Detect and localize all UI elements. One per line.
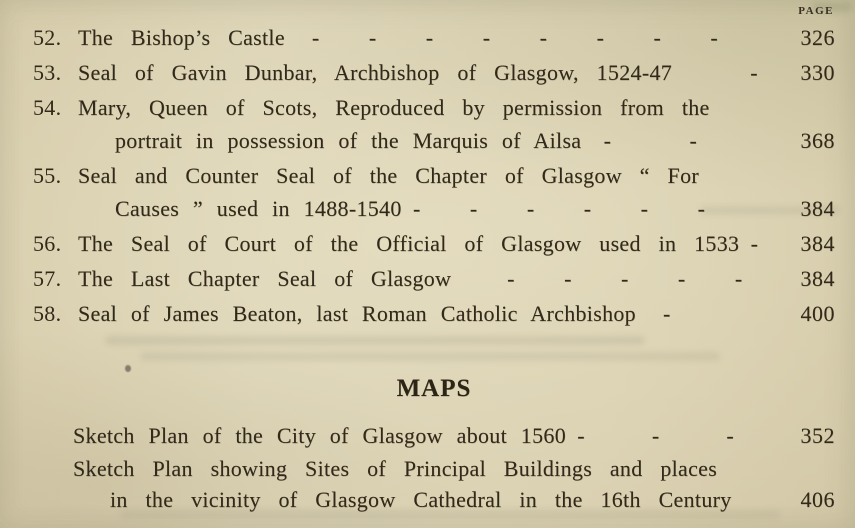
maps-list: Sketch Plan of the City of Glasgow about… <box>33 420 835 515</box>
maps-heading: MAPS <box>33 374 835 404</box>
entry-page-number: 384 <box>780 192 835 225</box>
map-entry-2: Sketch Plan showing Sites of Principal B… <box>33 453 835 515</box>
entry-body: The Bishop’s Castle - - - - - - - - <box>78 21 780 54</box>
book-page-scan: PAGE 52. The Bishop’s Castle - - - - - -… <box>0 0 855 528</box>
entry-title: Seal of James Beaton, last Roman Catholi… <box>78 297 780 330</box>
illustration-entry-56: 56. The Seal of Court of the Official of… <box>33 227 835 260</box>
entry-title-line-2: Causes ” used in 1488-1540 - - - - - - <box>78 192 780 225</box>
entry-page-number: 384 <box>780 227 835 260</box>
illustration-entry-53: 53. Seal of Gavin Dunbar, Archbishop of … <box>33 56 835 89</box>
entry-title: The Last Chapter Seal of Glasgow - - - -… <box>78 262 780 295</box>
entry-body: Mary, Queen of Scots, Reproduced by perm… <box>78 91 780 157</box>
entry-number: 57. <box>33 262 78 295</box>
illustration-entry-52: 52. The Bishop’s Castle - - - - - - - - … <box>33 21 835 54</box>
ink-speck <box>125 365 131 372</box>
entry-body: Sketch Plan of the City of Glasgow about… <box>73 420 780 451</box>
illustration-entry-57: 57. The Last Chapter Seal of Glasgow - -… <box>33 262 835 295</box>
entry-page-number: 326 <box>780 21 835 54</box>
entry-page-number: 384 <box>780 262 835 295</box>
entry-title-line-1: Mary, Queen of Scots, Reproduced by perm… <box>78 91 780 124</box>
entry-body: The Last Chapter Seal of Glasgow - - - -… <box>78 262 780 295</box>
entry-title: The Bishop’s Castle - - - - - - - - <box>78 21 780 54</box>
entry-number: 54. <box>33 91 78 124</box>
illustration-entry-58: 58. Seal of James Beaton, last Roman Cat… <box>33 297 835 330</box>
entry-title-line-1: Sketch Plan showing Sites of Principal B… <box>73 453 780 484</box>
entry-title: Seal of Gavin Dunbar, Archbishop of Glas… <box>78 56 780 89</box>
entry-page-number: 406 <box>780 484 835 515</box>
entry-number: 55. <box>33 159 78 192</box>
illustration-entry-54: 54. Mary, Queen of Scots, Reproduced by … <box>33 91 835 157</box>
entry-number: 53. <box>33 56 78 89</box>
entry-page-number: 330 <box>780 56 835 89</box>
map-entry-1: Sketch Plan of the City of Glasgow about… <box>33 420 835 451</box>
entry-page-number: 368 <box>780 124 835 157</box>
entry-body: Seal of Gavin Dunbar, Archbishop of Glas… <box>78 56 780 89</box>
entry-number: 58. <box>33 297 78 330</box>
entry-title: The Seal of Court of the Official of Gla… <box>78 227 780 260</box>
entry-body: Sketch Plan showing Sites of Principal B… <box>73 453 780 515</box>
page-column-header: PAGE <box>33 4 835 18</box>
entry-title-line-2: portrait in possession of the Marquis of… <box>78 124 780 157</box>
entry-title-line-1: Seal and Counter Seal of the Chapter of … <box>78 159 780 192</box>
entry-body: Seal and Counter Seal of the Chapter of … <box>78 159 780 225</box>
illustrations-list: 52. The Bishop’s Castle - - - - - - - - … <box>33 21 835 330</box>
entry-title-line-2: in the vicinity of Glasgow Cathedral in … <box>73 484 780 515</box>
page-content: PAGE 52. The Bishop’s Castle - - - - - -… <box>0 0 855 515</box>
entry-body: The Seal of Court of the Official of Gla… <box>78 227 780 260</box>
entry-number: 56. <box>33 227 78 260</box>
entry-page-number: 400 <box>780 297 835 330</box>
entry-page-number: 352 <box>780 420 835 451</box>
illustration-entry-55: 55. Seal and Counter Seal of the Chapter… <box>33 159 835 225</box>
entry-number: 52. <box>33 21 78 54</box>
entry-title: Sketch Plan of the City of Glasgow about… <box>73 420 780 451</box>
entry-body: Seal of James Beaton, last Roman Catholi… <box>78 297 780 330</box>
